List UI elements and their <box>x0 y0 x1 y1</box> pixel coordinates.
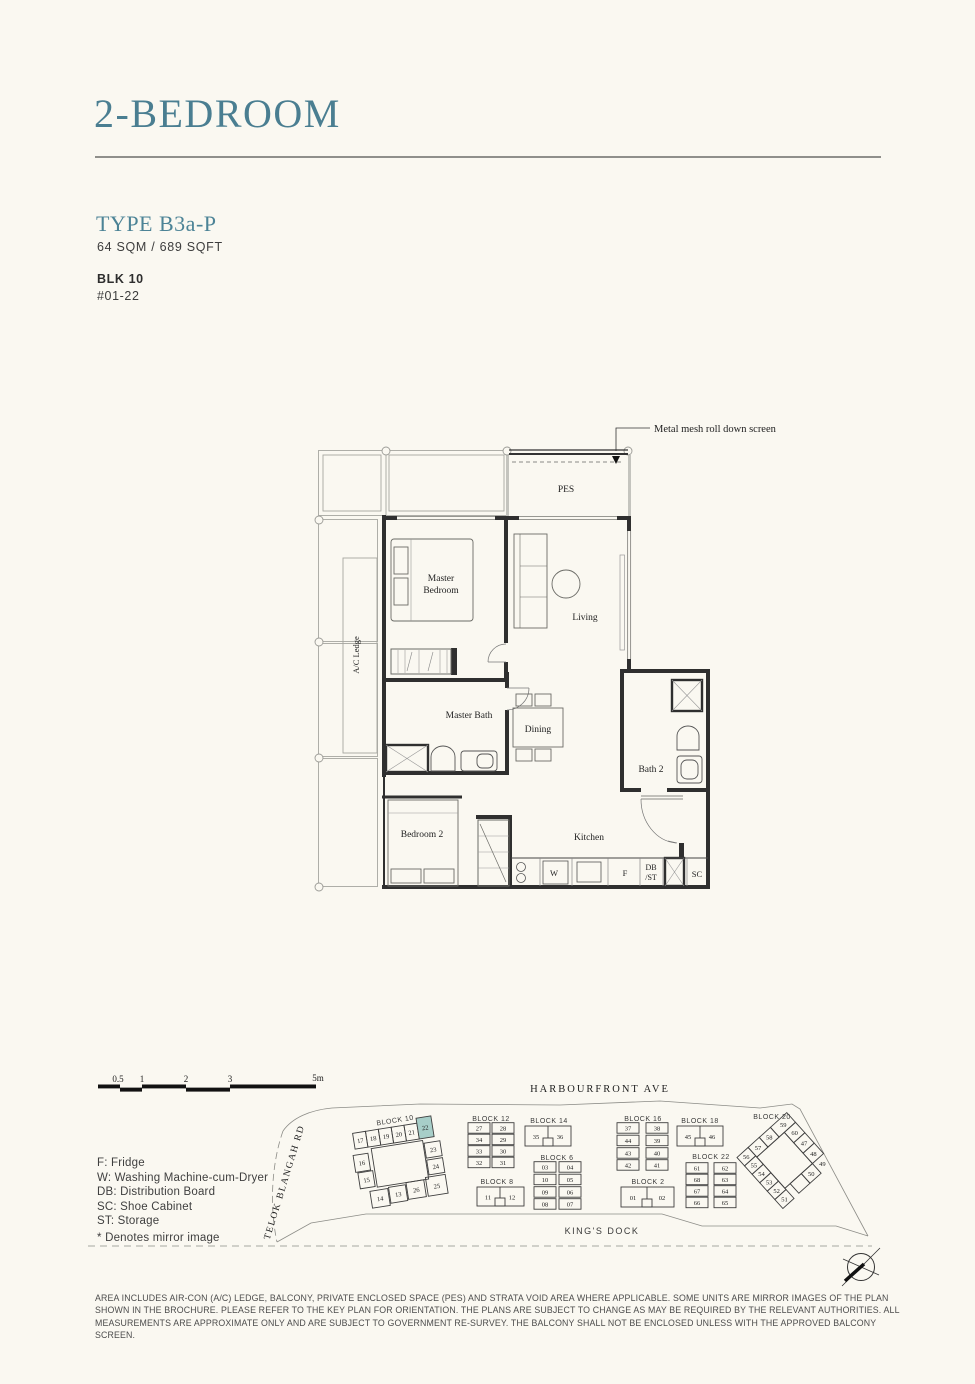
unit-type-label: TYPE B3a-P <box>96 211 217 237</box>
svg-text:58: 58 <box>766 1135 773 1142</box>
svg-text:59: 59 <box>780 1122 787 1129</box>
block-label: BLOCK 10 <box>376 1115 414 1128</box>
floor-plan: Metal mesh roll down screen <box>305 420 795 905</box>
svg-text:17: 17 <box>357 1137 365 1145</box>
svg-text:06: 06 <box>567 1190 574 1197</box>
svg-text:03: 03 <box>542 1165 549 1172</box>
svg-text:53: 53 <box>766 1179 773 1186</box>
legend-item: ST: Storage <box>97 1214 268 1229</box>
svg-text:47: 47 <box>801 1140 808 1147</box>
block-6: BLOCK 6 03 04 10 05 09 06 08 07 <box>534 1155 581 1209</box>
svg-text:50: 50 <box>808 1171 815 1178</box>
legend-item: F: Fridge <box>97 1156 268 1171</box>
block-label: BLOCK 20 <box>753 1114 790 1121</box>
svg-text:45: 45 <box>685 1134 692 1141</box>
svg-text:09: 09 <box>542 1190 549 1197</box>
legend-item: W: Washing Machine-cum-Dryer <box>97 1171 268 1186</box>
block-label: BLOCK 2 <box>631 1179 664 1186</box>
svg-text:11: 11 <box>485 1195 491 1202</box>
svg-text:68: 68 <box>694 1177 701 1184</box>
svg-text:65: 65 <box>722 1200 729 1207</box>
label-master-bedroom-2: Bedroom <box>423 586 459 596</box>
column-markers <box>315 447 632 891</box>
svg-text:33: 33 <box>476 1149 483 1156</box>
legend-item: DB: Distribution Board <box>97 1185 268 1200</box>
label-washer: W <box>550 868 558 878</box>
svg-text:19: 19 <box>382 1133 390 1141</box>
svg-text:08: 08 <box>542 1202 549 1209</box>
brochure-page: 2-BEDROOM TYPE B3a-P 64 SQM / 689 SQFT B… <box>0 0 975 1384</box>
block-20: BLOCK 20 59 57 58 60 56 55 47 <box>737 1113 833 1209</box>
svg-text:04: 04 <box>567 1165 574 1172</box>
svg-text:32: 32 <box>476 1160 483 1167</box>
label-pes: PES <box>558 485 574 495</box>
block-18: BLOCK 18 45 46 <box>677 1118 723 1146</box>
label-dining: Dining <box>525 725 552 735</box>
svg-text:21: 21 <box>408 1129 416 1137</box>
block-label: BLOCK 16 <box>624 1116 661 1123</box>
svg-text:40: 40 <box>654 1151 661 1158</box>
unit-area: 64 SQM / 689 SQFT <box>97 240 223 254</box>
road-kings-dock: KING'S DOCK <box>565 1226 640 1236</box>
svg-text:37: 37 <box>625 1126 632 1133</box>
svg-text:27: 27 <box>476 1126 483 1133</box>
svg-text:28: 28 <box>500 1126 507 1133</box>
svg-text:31: 31 <box>500 1160 507 1167</box>
svg-text:02: 02 <box>659 1195 666 1202</box>
block-14: BLOCK 14 35 36 <box>525 1118 571 1146</box>
svg-text:46: 46 <box>709 1134 716 1141</box>
label-sc: SC <box>692 869 703 879</box>
svg-text:49: 49 <box>819 1161 826 1168</box>
unit-number: #01-22 <box>97 289 140 303</box>
svg-text:22: 22 <box>421 1124 429 1132</box>
svg-text:62: 62 <box>722 1166 729 1173</box>
svg-text:52: 52 <box>773 1188 780 1195</box>
label-bath-2: Bath 2 <box>638 765 663 775</box>
svg-text:57: 57 <box>755 1145 762 1152</box>
legend-item: SC: Shoe Cabinet <box>97 1200 268 1215</box>
svg-text:16: 16 <box>358 1160 366 1168</box>
svg-text:60: 60 <box>791 1130 798 1137</box>
svg-text:29: 29 <box>500 1137 507 1144</box>
label-fridge: F <box>623 868 628 878</box>
svg-text:14: 14 <box>377 1195 385 1203</box>
svg-text:44: 44 <box>625 1138 632 1145</box>
label-st: /ST <box>645 873 657 882</box>
svg-text:51: 51 <box>781 1197 788 1204</box>
ledges-and-planters <box>319 450 630 887</box>
pes-screen: Metal mesh roll down screen <box>509 424 777 464</box>
divider-rule <box>95 156 881 158</box>
svg-text:63: 63 <box>722 1177 729 1184</box>
svg-text:55: 55 <box>751 1163 758 1170</box>
svg-text:10: 10 <box>542 1177 549 1184</box>
svg-text:42: 42 <box>625 1163 632 1170</box>
svg-text:56: 56 <box>743 1154 750 1161</box>
svg-text:61: 61 <box>694 1166 701 1173</box>
fixtures <box>386 680 708 886</box>
svg-text:35: 35 <box>533 1134 540 1141</box>
svg-text:41: 41 <box>654 1163 661 1170</box>
road-labels: HARBOURFRONT AVE TELOK BLANGAH RD KING'S… <box>263 1084 670 1241</box>
svg-text:07: 07 <box>567 1202 574 1209</box>
page-title: 2-BEDROOM <box>94 90 341 137</box>
label-living: Living <box>572 613 598 623</box>
block-16: BLOCK 16 37 38 44 39 43 40 42 41 <box>617 1116 668 1170</box>
svg-text:34: 34 <box>476 1137 483 1144</box>
block-label: BLOCK 22 <box>692 1154 729 1161</box>
block-label: BLOCK 6 <box>540 1155 573 1162</box>
svg-text:66: 66 <box>694 1200 701 1207</box>
north-compass-icon <box>842 1248 880 1286</box>
doors <box>488 644 677 843</box>
block-number: BLK 10 <box>97 272 144 286</box>
label-bedroom-2: Bedroom 2 <box>401 830 444 840</box>
svg-text:25: 25 <box>433 1183 441 1191</box>
scale-tick: 5m <box>312 1073 324 1083</box>
room-labels: PES Master Bedroom Living A/C Ledge Mast… <box>351 485 703 882</box>
scale-tick: 3 <box>228 1074 233 1084</box>
svg-text:38: 38 <box>654 1126 661 1133</box>
block-22: BLOCK 22 61 62 68 63 67 64 66 65 <box>686 1154 736 1208</box>
svg-text:01: 01 <box>630 1195 637 1202</box>
svg-text:64: 64 <box>722 1189 729 1196</box>
block-2: BLOCK 2 01 02 <box>621 1179 674 1207</box>
svg-text:67: 67 <box>694 1189 701 1196</box>
svg-text:15: 15 <box>363 1177 371 1185</box>
svg-text:20: 20 <box>395 1131 403 1139</box>
svg-text:43: 43 <box>625 1151 632 1158</box>
svg-text:48: 48 <box>810 1151 817 1158</box>
scale-tick: 1 <box>140 1074 145 1084</box>
scale-bar: 0.5 1 2 3 5m <box>98 1073 324 1092</box>
svg-text:18: 18 <box>370 1135 378 1143</box>
legend: F: Fridge W: Washing Machine-cum-Dryer D… <box>97 1156 268 1229</box>
svg-text:36: 36 <box>557 1134 564 1141</box>
label-db: DB <box>645 863 656 872</box>
label-kitchen: Kitchen <box>574 833 604 843</box>
screen-annotation: Metal mesh roll down screen <box>654 424 777 435</box>
label-ac-ledge: A/C Ledge <box>351 636 361 674</box>
label-master-bedroom-1: Master <box>428 574 455 584</box>
label-master-bath: Master Bath <box>446 711 493 721</box>
scale-tick: 2 <box>184 1074 189 1084</box>
road-harbourfront: HARBOURFRONT AVE <box>530 1084 670 1095</box>
block-8: BLOCK 8 11 12 <box>477 1179 524 1206</box>
svg-text:54: 54 <box>758 1171 765 1178</box>
svg-text:24: 24 <box>432 1163 440 1171</box>
svg-text:39: 39 <box>654 1138 661 1145</box>
mirror-image-note: * Denotes mirror image <box>97 1232 220 1244</box>
block-label: BLOCK 12 <box>472 1116 509 1123</box>
block-label: BLOCK 18 <box>681 1118 718 1125</box>
block-label: BLOCK 8 <box>480 1179 513 1186</box>
block-label: BLOCK 14 <box>530 1118 567 1125</box>
svg-text:12: 12 <box>509 1195 516 1202</box>
svg-text:26: 26 <box>413 1187 421 1195</box>
scale-tick: 0.5 <box>112 1074 124 1084</box>
disclaimer-text: AREA INCLUDES AIR-CON (A/C) LEDGE, BALCO… <box>95 1292 903 1342</box>
road-telok-blangah: TELOK BLANGAH RD <box>263 1124 308 1241</box>
svg-text:13: 13 <box>395 1191 403 1199</box>
block-10: BLOCK 10 17 18 19 20 21 22 23 24 25 26 1… <box>348 1111 448 1210</box>
svg-text:23: 23 <box>430 1146 438 1154</box>
svg-text:05: 05 <box>567 1177 574 1184</box>
svg-text:30: 30 <box>500 1149 507 1156</box>
block-12: BLOCK 12 27 28 34 29 33 30 32 31 <box>468 1116 514 1168</box>
